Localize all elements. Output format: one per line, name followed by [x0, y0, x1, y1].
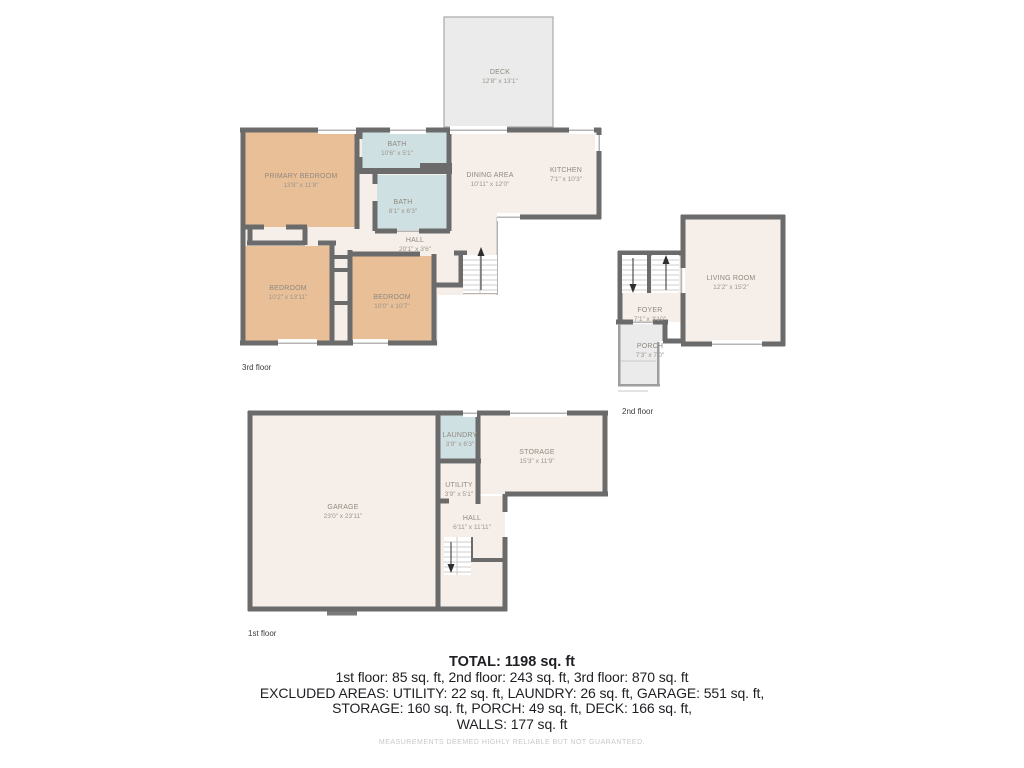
room-fill-laundry — [440, 413, 478, 461]
summary-total: TOTAL: 1198 sq. ft — [0, 654, 1024, 670]
room-fill-storage — [480, 413, 605, 494]
deck-area — [444, 17, 553, 127]
floorplan-drawing — [0, 0, 1024, 768]
room-fill-garage — [250, 411, 437, 610]
garage-door-marker — [327, 612, 357, 616]
disclaimer-text: MEASUREMENTS DEEMED HIGHLY RELIABLE BUT … — [0, 739, 1024, 746]
room-fill-bedroom-left — [244, 246, 331, 342]
summary-block: TOTAL: 1198 sq. ft 1st floor: 85 sq. ft,… — [0, 654, 1024, 746]
room-fill-bedroom-right — [352, 256, 432, 341]
floor-label-2nd: 2nd floor — [622, 407, 653, 416]
summary-excluded-line-2: STORAGE: 160 sq. ft, PORCH: 49 sq. ft, D… — [0, 701, 1024, 717]
floor-1-plan — [248, 409, 608, 616]
floor-label-3rd: 3rd floor — [242, 363, 271, 372]
room-fill-bath-upper — [362, 131, 447, 168]
room-fill-utility — [440, 464, 478, 501]
floor-2-plan — [616, 215, 785, 391]
room-fill-living-room — [685, 219, 781, 342]
summary-excluded-line-1: EXCLUDED AREAS: UTILITY: 22 sq. ft, LAUN… — [0, 686, 1024, 702]
room-fill-primary-bedroom — [244, 131, 356, 227]
floor-label-1st: 1st floor — [248, 629, 276, 638]
stairs-1st-floor — [444, 537, 471, 575]
summary-floors-line: 1st floor: 85 sq. ft, 2nd floor: 243 sq.… — [0, 670, 1024, 686]
floor-3-plan — [240, 17, 603, 347]
summary-excluded-line-3: WALLS: 177 sq. ft — [0, 717, 1024, 733]
floorplan-page: DECK 12'8" x 13'1" PRIMARY BEDROOM 13'8"… — [0, 0, 1024, 768]
room-fill-bath-lower — [377, 175, 447, 230]
